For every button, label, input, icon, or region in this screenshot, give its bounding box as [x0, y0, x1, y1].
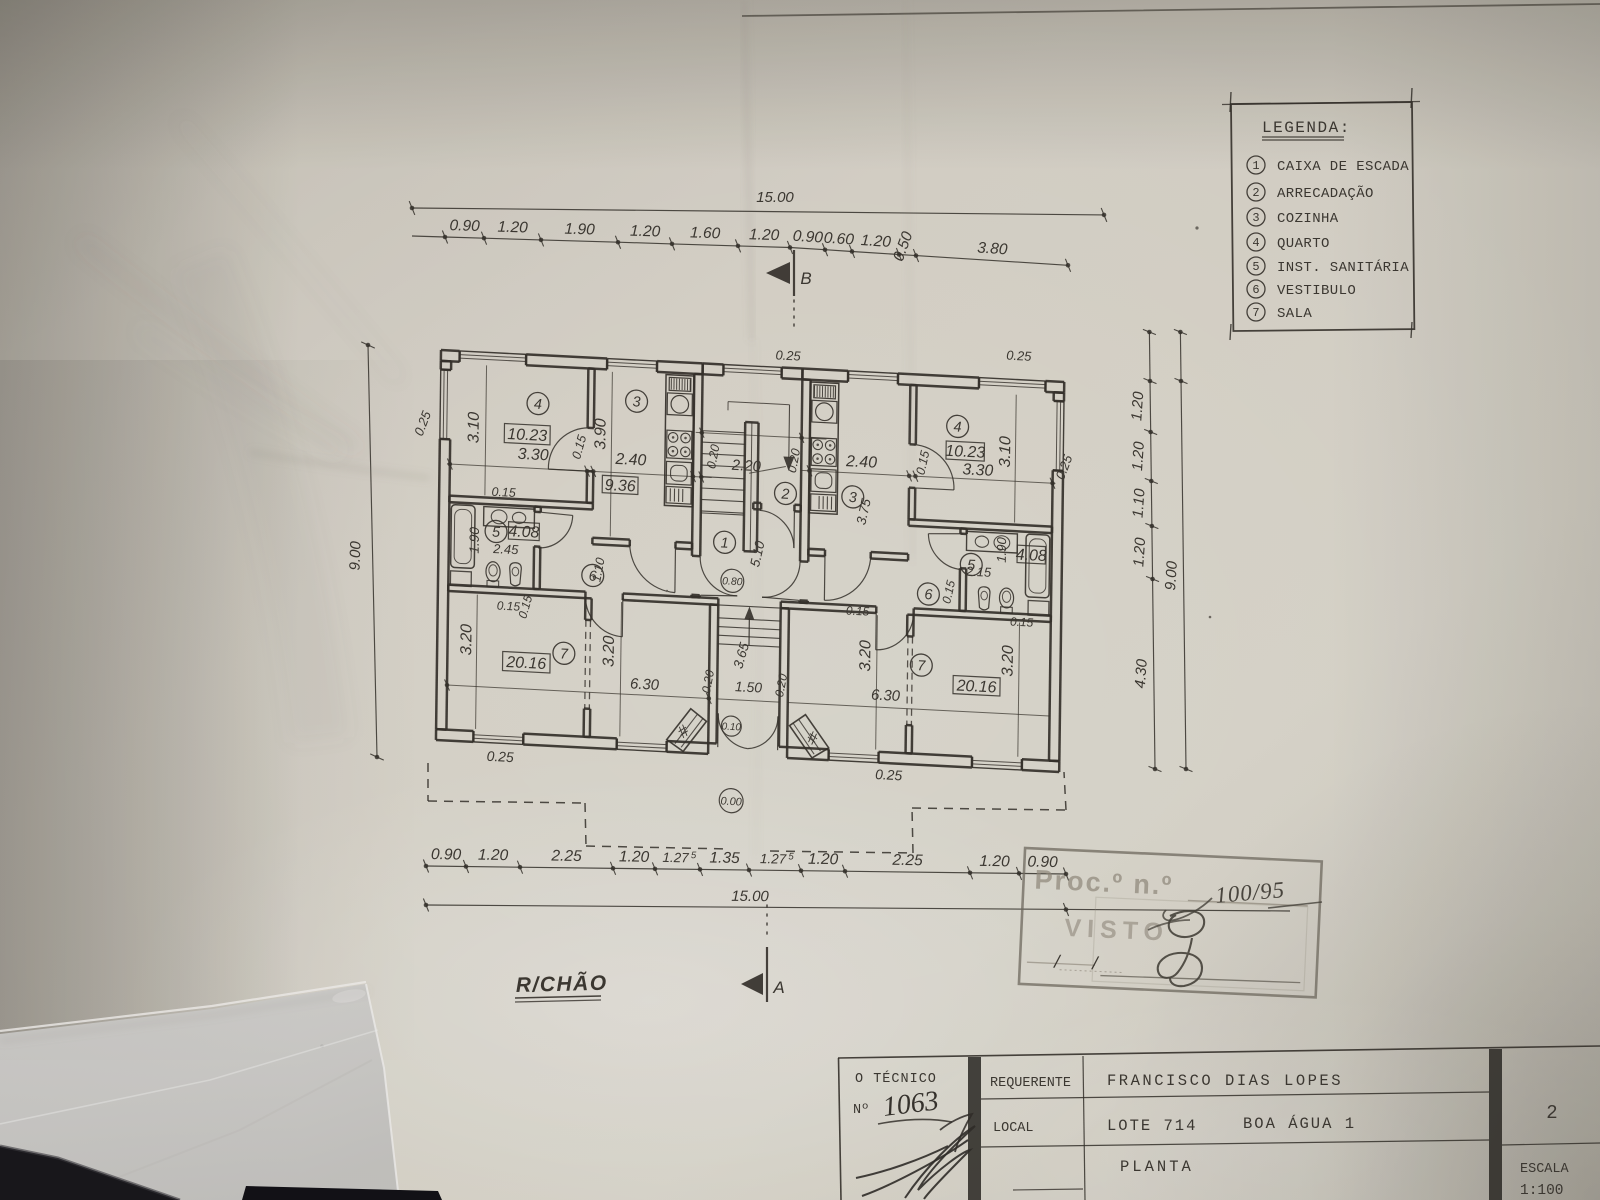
svg-text:0.90: 0.90 [792, 228, 824, 247]
svg-text:0.15: 0.15 [1010, 614, 1034, 629]
svg-text:0.60: 0.60 [823, 230, 855, 249]
svg-text:ESCALA: ESCALA [1520, 1162, 1570, 1177]
svg-text:0.25: 0.25 [487, 748, 514, 765]
svg-text:QUARTO: QUARTO [1277, 236, 1330, 252]
svg-text:2.40: 2.40 [614, 451, 646, 470]
svg-text:2.40: 2.40 [845, 453, 877, 472]
svg-text:PLANTA: PLANTA [1120, 1158, 1194, 1176]
svg-text:1.20: 1.20 [808, 851, 839, 869]
svg-text:FRANCISCO DIAS LOPES: FRANCISCO DIAS LOPES [1107, 1072, 1343, 1090]
svg-text:0.10: 0.10 [722, 721, 742, 733]
svg-text:0.25: 0.25 [1006, 347, 1032, 363]
svg-text:7: 7 [560, 646, 569, 663]
svg-text:1:100: 1:100 [1520, 1183, 1564, 1199]
svg-text:10.23: 10.23 [507, 426, 547, 445]
svg-text:INST. SANITÁRIA: INST. SANITÁRIA [1277, 258, 1409, 276]
svg-text:R/CHÃO: R/CHÃO [516, 972, 608, 997]
svg-text:3.10: 3.10 [997, 436, 1014, 468]
svg-text:1: 1 [720, 535, 728, 551]
svg-text:1.20: 1.20 [860, 232, 892, 251]
svg-text:2.25: 2.25 [891, 852, 923, 870]
svg-text:1.90: 1.90 [564, 221, 595, 239]
svg-text:3: 3 [632, 394, 640, 410]
svg-text:1.20: 1.20 [630, 223, 661, 241]
svg-text:LOCAL: LOCAL [993, 1121, 1034, 1136]
svg-text:1.20: 1.20 [1128, 390, 1147, 421]
svg-text:3.30: 3.30 [518, 446, 549, 465]
svg-text:0.25: 0.25 [875, 766, 902, 783]
svg-text:2: 2 [780, 486, 789, 503]
svg-text:5: 5 [1252, 260, 1259, 274]
svg-text:1.20: 1.20 [1129, 440, 1148, 471]
svg-text:1.60: 1.60 [690, 224, 721, 242]
svg-text:5: 5 [492, 524, 501, 541]
svg-text:1.27: 1.27 [662, 850, 689, 865]
svg-text:4.08: 4.08 [1016, 546, 1047, 565]
svg-text:6.30: 6.30 [871, 686, 901, 705]
svg-text:1.20: 1.20 [478, 847, 509, 865]
svg-text:4: 4 [1252, 236, 1259, 250]
svg-text:1.20: 1.20 [749, 226, 780, 244]
svg-text:0.25: 0.25 [775, 347, 801, 363]
svg-text:3.10: 3.10 [466, 411, 483, 443]
svg-text:1: 1 [1252, 159, 1259, 173]
svg-text:4: 4 [534, 397, 542, 413]
svg-text:5: 5 [691, 850, 697, 861]
svg-text:6: 6 [924, 587, 933, 604]
svg-text:CAIXA DE ESCADA: CAIXA DE ESCADA [1277, 159, 1409, 175]
svg-text:0.15: 0.15 [497, 598, 521, 613]
svg-text:1.20: 1.20 [1130, 536, 1149, 567]
svg-text:20.16: 20.16 [505, 654, 546, 673]
svg-text:2.25: 2.25 [550, 847, 582, 865]
svg-text:9.36: 9.36 [605, 477, 636, 496]
svg-text:0.80: 0.80 [722, 576, 743, 588]
svg-text:6: 6 [1252, 283, 1259, 297]
svg-text:3.20: 3.20 [857, 640, 874, 672]
svg-text:3.80: 3.80 [977, 239, 1009, 258]
svg-text:LEGENDA:: LEGENDA: [1262, 119, 1351, 137]
svg-text:0.90: 0.90 [431, 846, 462, 864]
svg-text:9.00: 9.00 [1162, 560, 1181, 591]
svg-text:1.20: 1.20 [979, 853, 1010, 871]
svg-text:6.30: 6.30 [630, 675, 660, 694]
svg-text:3.90: 3.90 [592, 418, 609, 450]
svg-text:2: 2 [1546, 1102, 1557, 1124]
svg-text:3.30: 3.30 [962, 461, 993, 480]
svg-text:1.35: 1.35 [709, 849, 740, 867]
svg-text:3: 3 [1252, 211, 1259, 225]
svg-text:4: 4 [954, 419, 962, 435]
svg-text:3.20: 3.20 [601, 635, 618, 667]
svg-text:15.00: 15.00 [756, 189, 794, 206]
svg-text:ARRECADAÇÃO: ARRECADAÇÃO [1277, 185, 1374, 202]
svg-text:VESTIBULO: VESTIBULO [1277, 283, 1356, 299]
svg-text:7: 7 [917, 658, 926, 675]
svg-text:5: 5 [788, 851, 794, 862]
svg-text:0.00: 0.00 [720, 795, 742, 808]
svg-text:1.90: 1.90 [467, 526, 482, 554]
svg-text:LOTE 714: LOTE 714 [1107, 1117, 1197, 1135]
svg-text:Nº: Nº [853, 1103, 869, 1118]
svg-text:0.15: 0.15 [846, 603, 870, 618]
svg-text:BOA ÁGUA 1: BOA ÁGUA 1 [1243, 1115, 1356, 1133]
svg-text:1.20: 1.20 [497, 219, 528, 237]
svg-text:A: A [772, 978, 784, 997]
svg-text:9.00: 9.00 [346, 540, 364, 570]
svg-text:VISTO: VISTO [1064, 914, 1170, 947]
svg-text:20.16: 20.16 [956, 677, 997, 696]
svg-text:1.20: 1.20 [619, 848, 650, 866]
svg-text:7: 7 [1252, 306, 1259, 320]
svg-text:2.15: 2.15 [965, 563, 992, 579]
svg-text:REQUERENTE: REQUERENTE [990, 1076, 1071, 1091]
svg-text:2.45: 2.45 [492, 541, 519, 557]
svg-text:SALA: SALA [1277, 306, 1312, 322]
svg-text:3.20: 3.20 [1000, 645, 1017, 677]
svg-text:4.08: 4.08 [508, 523, 539, 542]
svg-text:3.20: 3.20 [458, 624, 475, 656]
svg-text:3: 3 [849, 490, 857, 506]
svg-text:0.15: 0.15 [491, 485, 515, 500]
svg-text:15.00: 15.00 [731, 888, 769, 905]
svg-text:10.23: 10.23 [945, 443, 985, 462]
svg-text:1.90: 1.90 [994, 536, 1009, 563]
svg-text:1.10: 1.10 [1130, 487, 1149, 518]
svg-text:2: 2 [1252, 186, 1259, 200]
svg-text:COZINHA: COZINHA [1277, 211, 1339, 227]
svg-text:Proc.º n.º: Proc.º n.º [1034, 864, 1174, 900]
svg-text:1.27: 1.27 [760, 851, 787, 866]
svg-text:O TÉCNICO: O TÉCNICO [855, 1071, 937, 1087]
svg-text:4.30: 4.30 [1132, 658, 1151, 689]
svg-text:B: B [800, 269, 811, 288]
svg-text:0.90: 0.90 [449, 217, 480, 235]
